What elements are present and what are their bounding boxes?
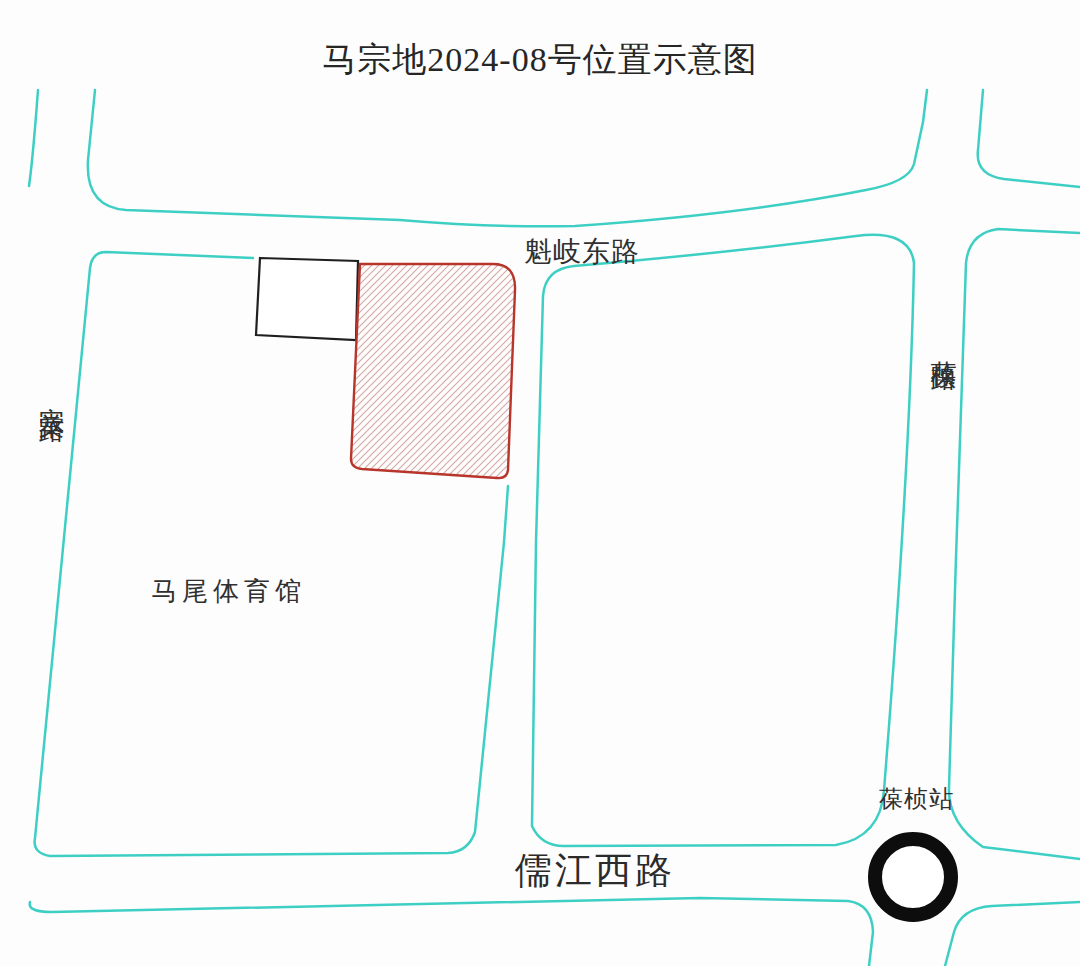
station-label-baozhen: 葆桢站 — [879, 786, 954, 814]
location-sketch-map: 马宗地2024-08号位置示意图 魁岐东路 宗棠路 葆桢路 马尾体育馆 儒江西路… — [0, 0, 1080, 966]
road-rujiang-south-edge-east — [945, 902, 1080, 966]
road-label-baozhen: 葆桢路 — [928, 340, 958, 346]
road-kuiqi-east-north-edge — [88, 90, 927, 226]
place-label-gymnasium: 马尾体育馆 — [151, 577, 306, 607]
road-baozhen-lower-east-edge — [949, 229, 1080, 859]
road-label-zongtang: 宗棠路 — [36, 386, 66, 401]
road-label-rujiang-west: 儒江西路 — [515, 850, 675, 893]
metro-station-icon — [875, 839, 951, 915]
adjacent-building-outline — [256, 258, 358, 340]
road-label-kuiqi-east: 魁岐东路 — [524, 236, 640, 268]
map-canvas — [0, 0, 1080, 966]
map-title: 马宗地2024-08号位置示意图 — [0, 40, 1080, 79]
road-zongtang-west-edge — [29, 90, 38, 186]
block-east-outline — [532, 235, 914, 846]
subject-parcel — [351, 264, 515, 478]
road-rujiang-south-edge-west — [30, 898, 873, 966]
road-baozhen-upper-east-edge — [978, 90, 1080, 187]
